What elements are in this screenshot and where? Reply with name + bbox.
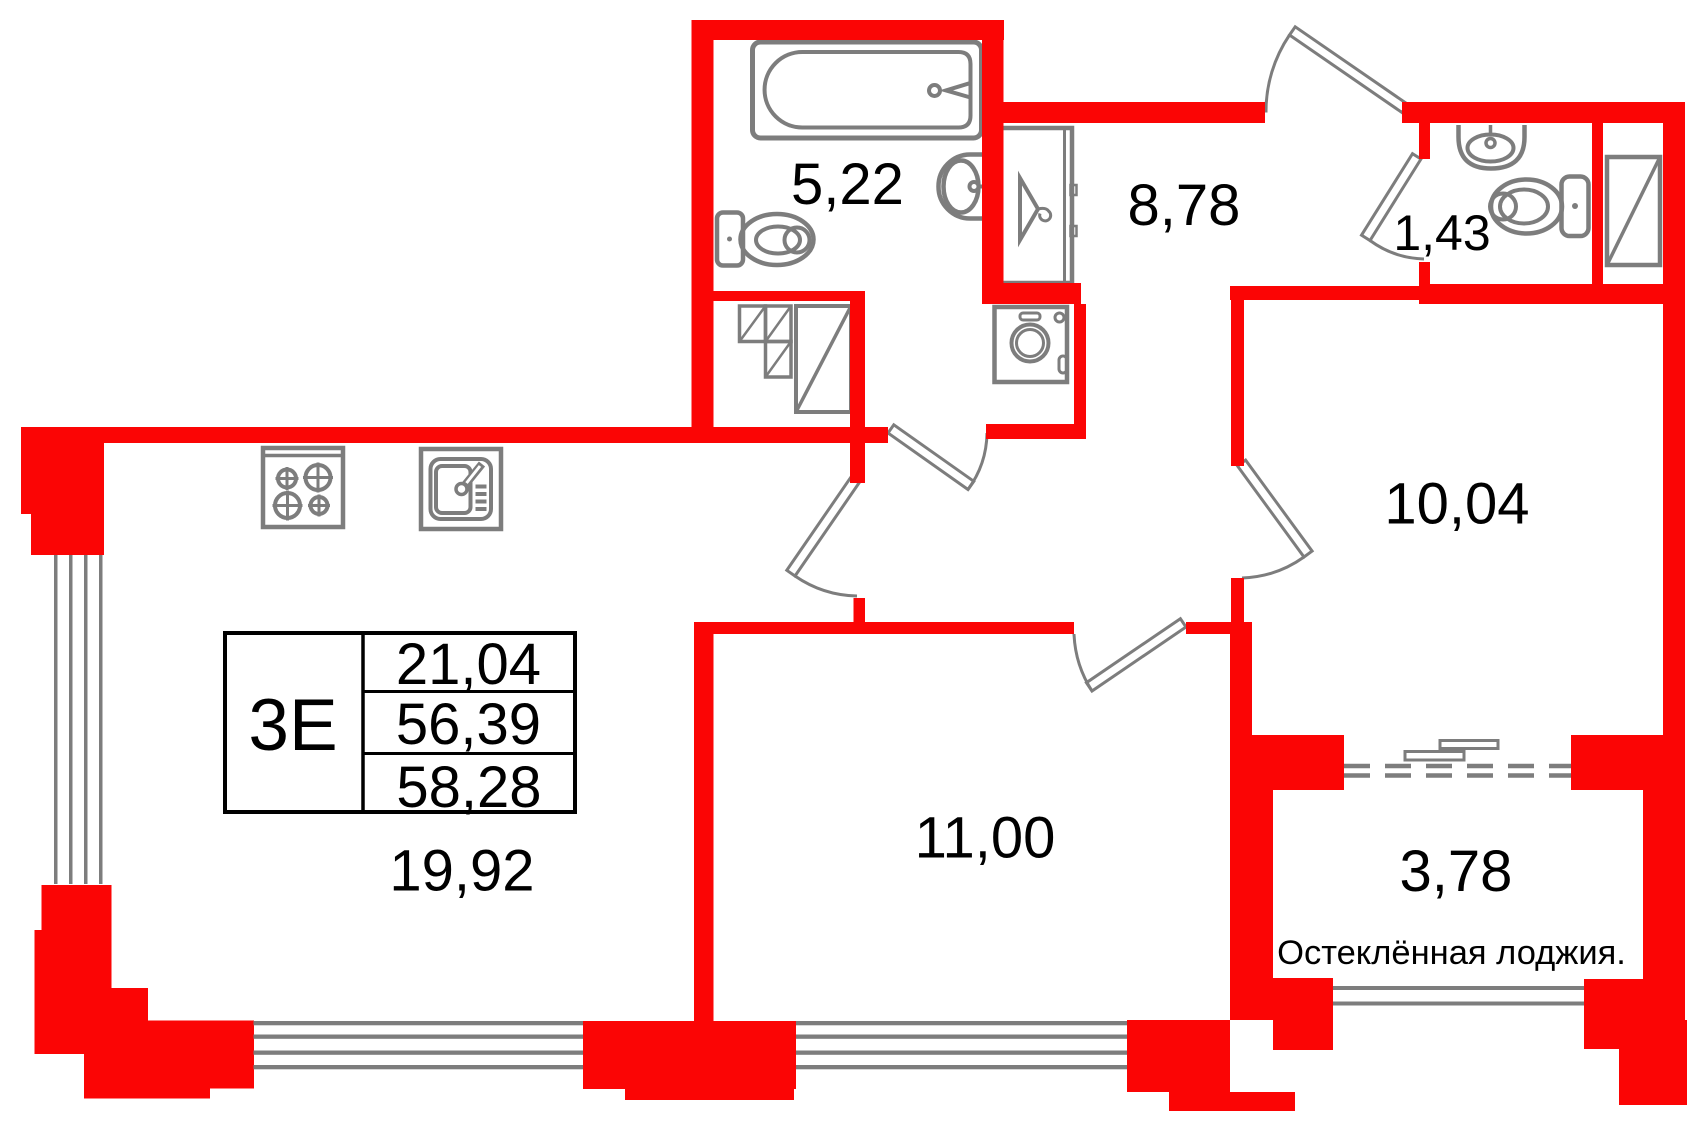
svg-text:56,39: 56,39 bbox=[396, 692, 541, 757]
svg-text:58,28: 58,28 bbox=[396, 755, 541, 820]
svg-text:11,00: 11,00 bbox=[915, 806, 1056, 871]
svg-text:3,78: 3,78 bbox=[1400, 839, 1513, 904]
svg-text:10,04: 10,04 bbox=[1384, 472, 1529, 537]
svg-text:19,92: 19,92 bbox=[389, 839, 534, 904]
svg-text:Остеклённая лоджия.: Остеклённая лоджия. bbox=[1277, 934, 1626, 972]
svg-text:1,43: 1,43 bbox=[1393, 205, 1490, 261]
svg-text:3Е: 3Е bbox=[248, 685, 337, 766]
svg-text:8,78: 8,78 bbox=[1128, 173, 1241, 238]
svg-text:21,04: 21,04 bbox=[396, 632, 541, 697]
svg-text:5,22: 5,22 bbox=[791, 152, 904, 217]
